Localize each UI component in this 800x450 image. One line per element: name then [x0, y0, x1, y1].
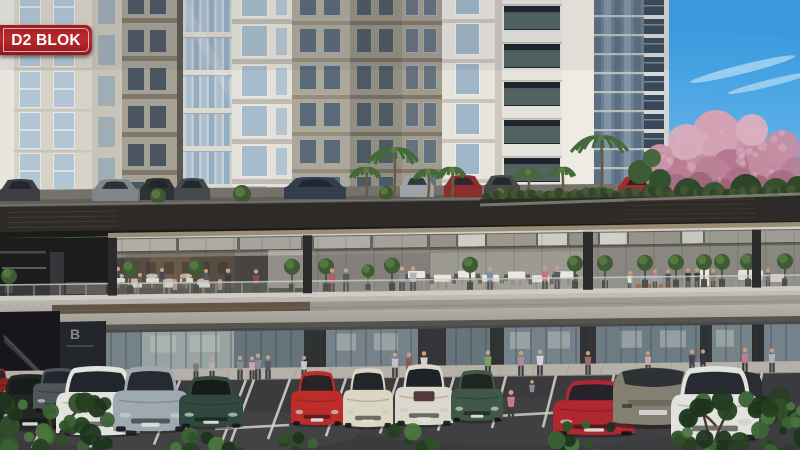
svg-text:B: B [70, 326, 80, 342]
